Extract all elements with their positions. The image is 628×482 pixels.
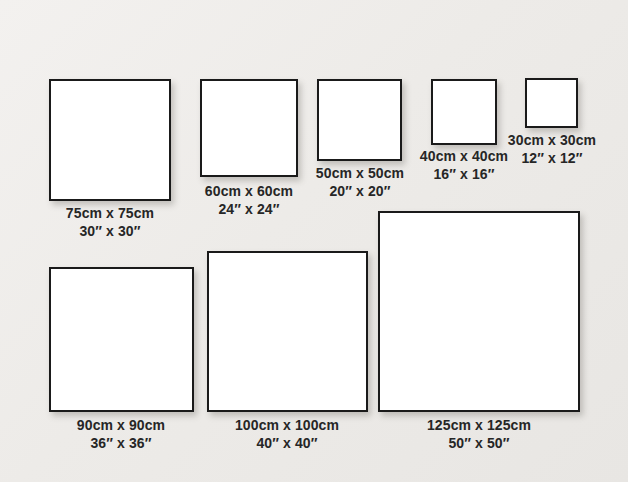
frame-30cm-square (525, 78, 578, 128)
frame-125cm-square (378, 211, 580, 412)
size-comparison-diagram: 75cm x 75cm 30″ x 30″ 60cm x 60cm 24″ x … (0, 0, 628, 482)
size-label-inch: 12″ x 12″ (477, 149, 627, 167)
size-label-cm: 100cm x 100cm (212, 416, 362, 434)
size-label-inch: 24″ x 24″ (174, 200, 324, 218)
size-label-inch: 16″ x 16″ (389, 165, 539, 183)
size-label-cm: 30cm x 30cm (477, 131, 627, 149)
size-label-125: 125cm x 125cm 50″ x 50″ (404, 416, 554, 452)
size-label-90: 90cm x 90cm 36″ x 36″ (46, 416, 196, 452)
frame-100cm-square (207, 251, 368, 412)
size-label-cm: 75cm x 75cm (35, 204, 185, 222)
size-label-cm: 125cm x 125cm (404, 416, 554, 434)
size-label-inch: 50″ x 50″ (404, 434, 554, 452)
size-label-inch: 40″ x 40″ (212, 434, 362, 452)
size-label-100: 100cm x 100cm 40″ x 40″ (212, 416, 362, 452)
size-label-inch: 36″ x 36″ (46, 434, 196, 452)
frame-90cm-square (49, 267, 194, 412)
size-label-30: 30cm x 30cm 12″ x 12″ (477, 131, 627, 167)
size-label-cm: 90cm x 90cm (46, 416, 196, 434)
size-label-75: 75cm x 75cm 30″ x 30″ (35, 204, 185, 240)
size-label-inch: 20″ x 20″ (285, 182, 435, 200)
frame-75cm-square (49, 79, 171, 201)
frame-60cm-square (200, 79, 298, 177)
size-label-inch: 30″ x 30″ (35, 222, 185, 240)
